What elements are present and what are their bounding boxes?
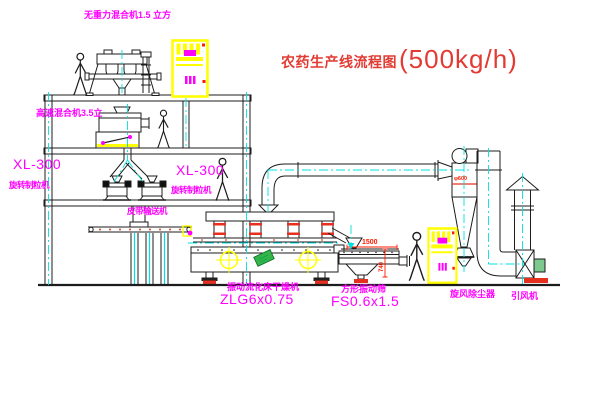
process-flow-diagram: 农药生产线流程图 (500kg/h) 无重力混合机1.5 立方 高速混合机3.5… — [0, 0, 600, 403]
label-dryer-model: ZLG6x0.75 — [220, 292, 294, 306]
title-text: 农药生产线流程图 — [281, 52, 397, 72]
label-high-speed-mixer: 高速混合机3.5立 — [36, 109, 103, 118]
vibrating-sieve — [328, 228, 410, 283]
dimension-cyclone-diameter: φ600 — [454, 177, 467, 183]
induced-draft-fan — [516, 250, 548, 283]
conveyor-supports — [131, 233, 168, 285]
person-ground — [409, 233, 424, 281]
y-chute — [110, 148, 148, 179]
dimension-sieve-length: 1500 — [362, 239, 378, 246]
label-granulator-right-name: 旋转制粒机 — [171, 186, 211, 195]
label-granulator-left-model: XL-300 — [13, 157, 61, 171]
label-fan: 引风机 — [511, 292, 538, 301]
belt-conveyor-graphic — [88, 226, 192, 236]
person-floor2 — [158, 110, 170, 148]
granulator-left — [103, 176, 131, 200]
label-sieve-model: FS0.6x1.5 — [331, 294, 399, 308]
control-cabinet-roof — [173, 41, 208, 97]
label-granulator-right-model: XL-300 — [176, 163, 224, 177]
control-cabinet-sieve — [428, 228, 456, 282]
dimension-sieve-height: 740 — [379, 262, 385, 272]
diagram-title: 农药生产线流程图 (500kg/h) — [281, 44, 518, 75]
exhaust-duct — [259, 160, 452, 212]
downcomer-duct — [475, 151, 516, 276]
high-speed-mixer — [96, 107, 149, 148]
label-cyclone: 旋风除尘器 — [450, 290, 495, 299]
title-capacity: (500kg/h) — [399, 44, 518, 75]
fluid-bed-dryer — [191, 212, 338, 284]
label-granulator-left-name: 旋转制粒机 — [9, 181, 49, 190]
granulator-right — [138, 176, 166, 200]
label-gravity-mixer: 无重力混合机1.5 立方 — [84, 11, 171, 20]
gravity-mixer — [85, 50, 161, 96]
label-belt-conveyor: 皮带输送机 — [127, 207, 167, 216]
